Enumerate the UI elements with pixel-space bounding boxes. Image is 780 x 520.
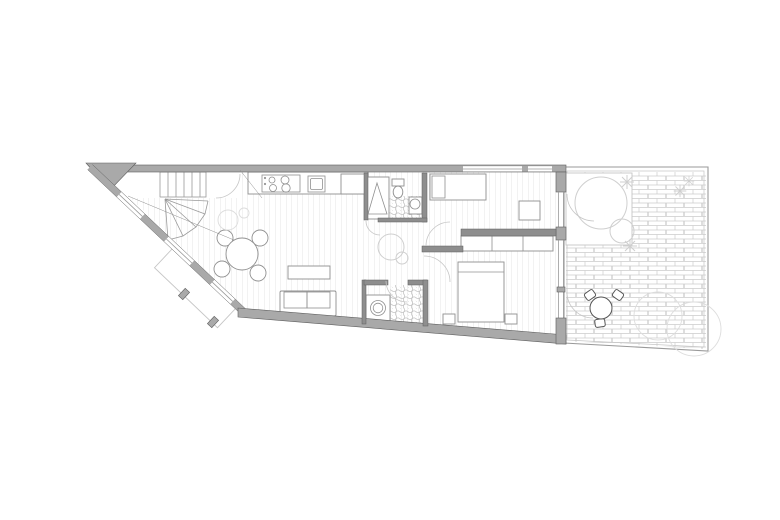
bathroom-wall	[422, 173, 427, 222]
laundry-wall	[364, 280, 388, 285]
flower-plant-icon	[623, 239, 637, 253]
laundry-wall	[423, 280, 428, 326]
shower-tray	[365, 177, 389, 219]
right-wall-pier	[556, 227, 566, 240]
patio-garden	[564, 167, 721, 356]
door-mullion	[557, 287, 565, 292]
dining-chair	[214, 261, 230, 277]
bedroom-divider-wall	[422, 246, 463, 252]
bathroom-wall	[364, 173, 368, 220]
refrigerator	[341, 174, 367, 194]
built-in-wardrobe	[461, 236, 553, 251]
patio-table	[590, 297, 612, 319]
nightstand	[443, 314, 455, 324]
washbasin-icon	[409, 197, 422, 214]
nightstand	[505, 314, 517, 324]
flower-plant-icon	[620, 175, 634, 189]
floor-plan-drawing	[0, 0, 780, 520]
bedroom-divider-wall	[461, 229, 556, 236]
kitchen-counter	[248, 172, 368, 194]
round-dining-table	[226, 238, 258, 270]
flower-plant-icon	[674, 185, 687, 198]
desk	[519, 201, 540, 220]
entry-floor	[104, 172, 242, 198]
right-wall-pier	[556, 318, 566, 344]
toilet-icon	[392, 179, 404, 198]
flower-plant-icon	[684, 176, 695, 187]
bathroom-wall	[378, 218, 427, 222]
right-wall-pier	[556, 172, 566, 192]
washing-machine-icon	[366, 295, 390, 321]
single-bed	[430, 174, 486, 200]
coffee-table	[288, 266, 330, 279]
floor-plan-sheet	[0, 0, 780, 520]
double-bed	[458, 262, 504, 322]
patio-chair	[594, 318, 605, 327]
laundry-wall	[362, 280, 366, 324]
dining-chair	[250, 265, 266, 281]
laundry-tile-floor	[390, 285, 423, 323]
